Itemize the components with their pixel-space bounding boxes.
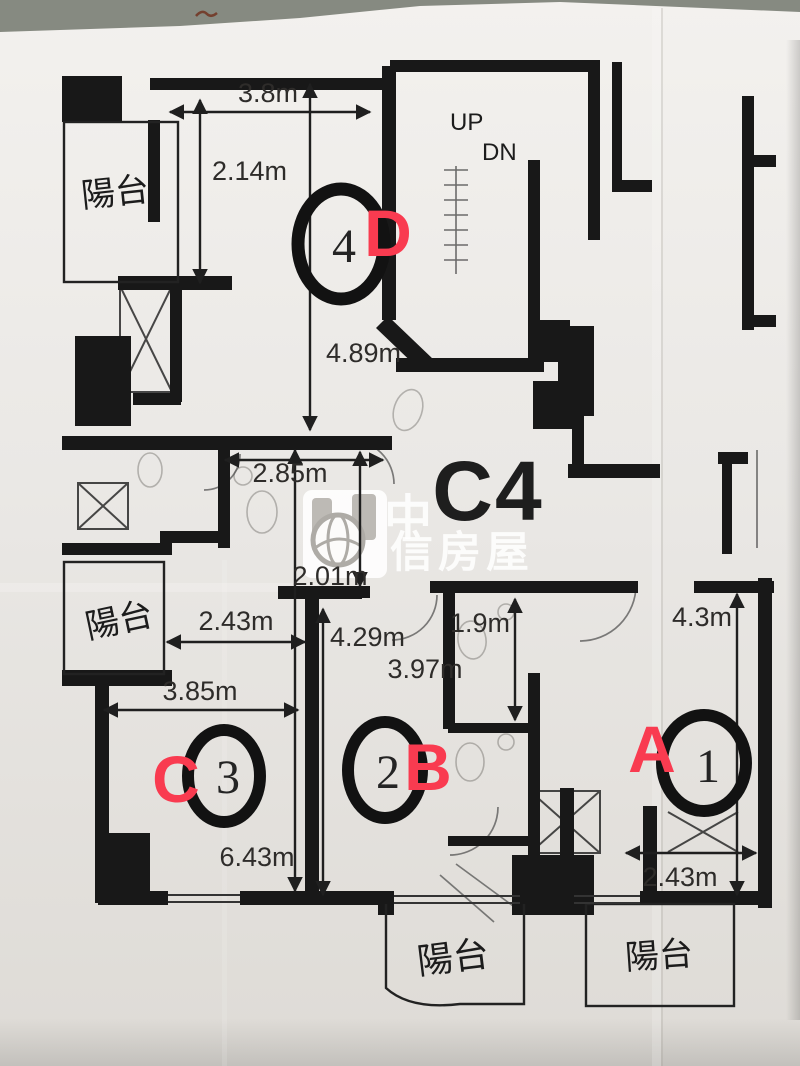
room-number-1: 1 xyxy=(696,740,720,793)
floor-plan-photo: UP DN C4 陽台 陽台 陽台 陽台 中 信房屋 3.8m 2.14m 4.… xyxy=(0,0,800,1066)
unit-marker-b: B xyxy=(404,730,452,804)
balcony-label: 陽台 xyxy=(624,935,694,978)
dim-balcony-depth: 2.14m xyxy=(212,156,287,186)
dim-mid-width: 2.85m xyxy=(252,458,327,488)
watermark-brand-line2: 信房屋 xyxy=(390,529,534,577)
balcony-label: 陽台 xyxy=(79,171,151,216)
dim-room2-width: 3.97m xyxy=(387,654,462,684)
dim-hall-width: 2.01m xyxy=(292,561,367,591)
stairs-dn-label: DN xyxy=(482,139,517,166)
unit-marker-c: C xyxy=(152,742,200,816)
unit-marker-d: D xyxy=(364,196,412,270)
dim-room1-width: 2.43m xyxy=(642,862,717,892)
stairs-up-label: UP xyxy=(450,109,483,136)
balcony-label: 陽台 xyxy=(415,933,491,982)
room-number-2: 2 xyxy=(376,746,400,799)
dim-room3-height: 6.43m xyxy=(219,842,294,872)
screenshot-root: UP DN C4 陽台 陽台 陽台 陽台 中 信房屋 3.8m 2.14m 4.… xyxy=(0,0,800,1066)
dim-room4-depth: 4.89m xyxy=(326,338,401,368)
plan-code-label: C4 xyxy=(432,444,543,538)
unit-marker-a: A xyxy=(628,712,676,786)
dim-room2-height: 4.29m xyxy=(330,622,405,652)
dim-room1-height: 4.3m xyxy=(672,602,732,632)
room-number-3: 3 xyxy=(216,751,240,804)
paper-bottom-shadow xyxy=(0,1018,800,1066)
dim-bath-height: 1.9m xyxy=(450,608,510,638)
dim-top-width: 3.8m xyxy=(238,78,298,108)
paper-right-edge-shadow xyxy=(786,40,800,1020)
room-number-4: 4 xyxy=(332,220,356,273)
dim-room3-top-width: 2.43m xyxy=(198,606,273,636)
dim-room3-width: 3.85m xyxy=(162,676,237,706)
